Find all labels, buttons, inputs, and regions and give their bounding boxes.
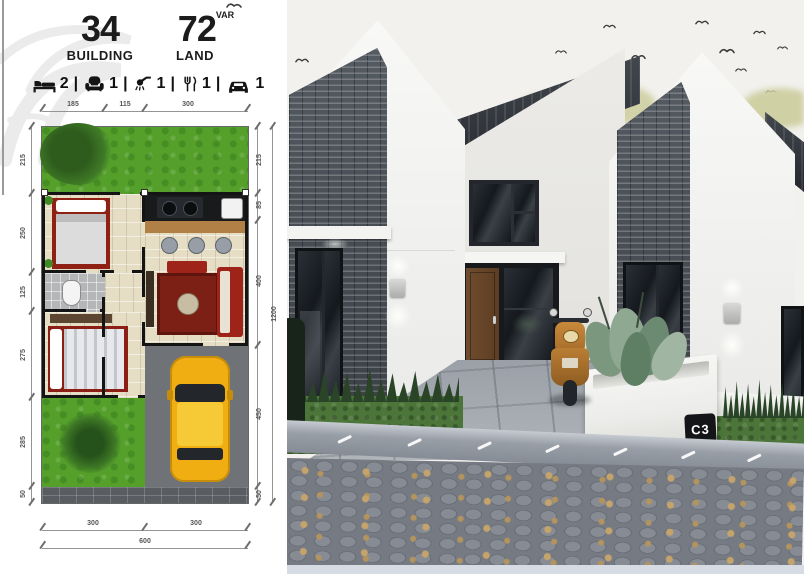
wall	[42, 309, 86, 312]
fence-post	[41, 189, 48, 196]
sink	[221, 198, 243, 219]
bottom-strip	[287, 565, 804, 574]
tv-console	[146, 271, 154, 327]
shower-icon	[133, 74, 154, 94]
dim-left-1: 215	[20, 148, 28, 172]
wall	[102, 357, 105, 398]
land-number: 72	[178, 8, 216, 49]
wall	[42, 395, 118, 398]
wall	[145, 343, 203, 346]
dim-right-3: 400	[256, 271, 264, 291]
entry-door	[466, 268, 499, 364]
scooter-plate	[562, 358, 578, 368]
wall	[140, 192, 248, 195]
bedrooms-count: 2	[60, 75, 69, 93]
curb-dash	[407, 438, 422, 447]
scooter-mirror	[583, 308, 592, 317]
stool	[188, 237, 205, 254]
dim-left-6: 50	[20, 482, 28, 506]
bathroom-count: 1	[157, 75, 166, 93]
carport-count: 1	[255, 75, 264, 93]
cobblestone-road	[287, 458, 804, 574]
scooter	[543, 306, 597, 408]
curb-dash	[477, 441, 492, 450]
dim-right-5: 50	[256, 484, 264, 504]
stool	[215, 237, 232, 254]
dining-area	[145, 221, 248, 257]
scooter-headlight	[563, 330, 579, 343]
dim-line-bottom	[42, 530, 248, 531]
dining-bar	[145, 221, 248, 233]
curb-dash	[681, 450, 696, 459]
wall	[142, 322, 145, 346]
garden-tree	[40, 123, 116, 185]
curb-dash	[545, 444, 560, 453]
dim-bottom-total: 600	[130, 538, 160, 546]
dim-bottom-1: 300	[78, 520, 108, 528]
wall-lamp-right	[724, 303, 740, 323]
wall	[142, 192, 145, 222]
amenity-bathroom: 1	[133, 74, 166, 94]
bed-icon	[32, 74, 57, 94]
bird-icon	[719, 46, 735, 55]
dim-top-2: 115	[110, 101, 140, 109]
amenity-bedrooms: 2	[32, 74, 69, 94]
bird-icon	[777, 44, 788, 51]
bathroom	[42, 273, 105, 312]
bird-icon	[735, 66, 747, 73]
wall	[245, 192, 248, 346]
dim-top-3: 300	[173, 101, 203, 109]
bed-1	[52, 198, 110, 269]
dim-left-3: 125	[20, 280, 28, 304]
bird-icon	[753, 28, 766, 36]
dim-line-right	[257, 127, 258, 503]
dim-left-5: 285	[20, 430, 28, 454]
dim-bottom-2: 300	[181, 520, 211, 528]
bedroom1-plant	[44, 196, 53, 205]
dim-line-left	[31, 127, 32, 503]
wall	[42, 192, 120, 195]
amenity-separator: |	[74, 75, 78, 93]
wall-lamp-left	[390, 279, 405, 297]
building-value: 34	[45, 8, 155, 50]
sofa-icon	[83, 74, 106, 94]
amenity-livingroom: 1	[83, 74, 118, 94]
bird-icon	[603, 22, 616, 30]
fence-post	[141, 189, 148, 196]
toilet	[62, 280, 81, 306]
lamp-glow-down	[379, 296, 417, 336]
curb-dash	[337, 435, 352, 444]
house-render: C3	[287, 0, 804, 574]
wall	[102, 297, 105, 337]
stove	[157, 197, 203, 218]
dim-line-top	[42, 111, 248, 112]
livingroom-count: 1	[109, 75, 118, 93]
fence-post	[242, 189, 249, 196]
wall	[42, 270, 86, 273]
amenity-separator: |	[123, 75, 127, 93]
left-panel: 34 BUILDING 72VAR LAND 2 | 1 | 1 |	[0, 0, 287, 574]
door-handle	[493, 316, 496, 324]
amenity-dining: 1	[180, 74, 211, 94]
lamp-glow-down	[713, 324, 751, 366]
dim-right-4: 450	[256, 404, 264, 424]
scooter-mirror	[549, 308, 558, 317]
dim-right-total: 1200	[271, 302, 279, 326]
dining-icon	[180, 74, 199, 94]
bird-icon	[555, 48, 567, 55]
amenity-separator: |	[170, 75, 174, 93]
bedroom-2	[42, 312, 145, 398]
wall	[138, 395, 145, 398]
bed-2	[48, 326, 128, 392]
wall	[229, 343, 248, 346]
coffee-table	[177, 293, 199, 315]
kitchen-counter	[145, 194, 248, 221]
dim-line-bottom-total	[42, 548, 248, 549]
dim-left-4: 275	[20, 343, 28, 367]
bedroom1-plant	[44, 259, 53, 268]
scooter-headset	[555, 322, 585, 350]
sidewalk-strip	[42, 487, 248, 503]
garden-bush	[58, 413, 122, 473]
car-icon	[225, 74, 252, 94]
curb-dash	[613, 447, 628, 456]
dim-tick	[28, 498, 34, 506]
dim-right-1: 215	[256, 150, 264, 170]
wall	[102, 270, 105, 277]
land-var-sup: VAR	[216, 10, 234, 20]
lamp-glow-up	[381, 250, 415, 282]
upper-window	[469, 180, 539, 246]
unit-badge-text: C3	[691, 422, 710, 438]
curb-dash	[747, 453, 762, 462]
car-topview	[170, 356, 230, 482]
building-label: BUILDING	[45, 48, 155, 63]
amenities-row: 2 | 1 | 1 | 1 | 1	[40, 70, 256, 98]
dim-tick	[269, 498, 275, 506]
land-value: 72VAR	[150, 8, 262, 50]
dim-top-1: 185	[58, 101, 88, 109]
sofa	[217, 267, 243, 337]
scooter-wheel	[563, 380, 577, 406]
sofa-small	[167, 261, 207, 273]
amenity-separator: |	[216, 75, 220, 93]
stool	[161, 237, 178, 254]
dim-right-2: 85	[256, 195, 264, 215]
dim-left-2: 250	[20, 221, 28, 245]
amenity-carport: 1	[225, 74, 264, 94]
wall	[142, 247, 145, 297]
bird-icon	[295, 56, 309, 64]
listing-flyer: 34 BUILDING 72VAR LAND 2 | 1 | 1 |	[0, 0, 804, 574]
lamp-glow-up	[715, 272, 749, 304]
land-label: LAND	[140, 48, 250, 63]
floor-plan	[42, 127, 248, 503]
left-edge-line	[2, 0, 4, 195]
living-room	[145, 257, 248, 346]
bird-icon	[695, 18, 709, 26]
dining-count: 1	[202, 75, 211, 93]
wall	[42, 192, 45, 398]
